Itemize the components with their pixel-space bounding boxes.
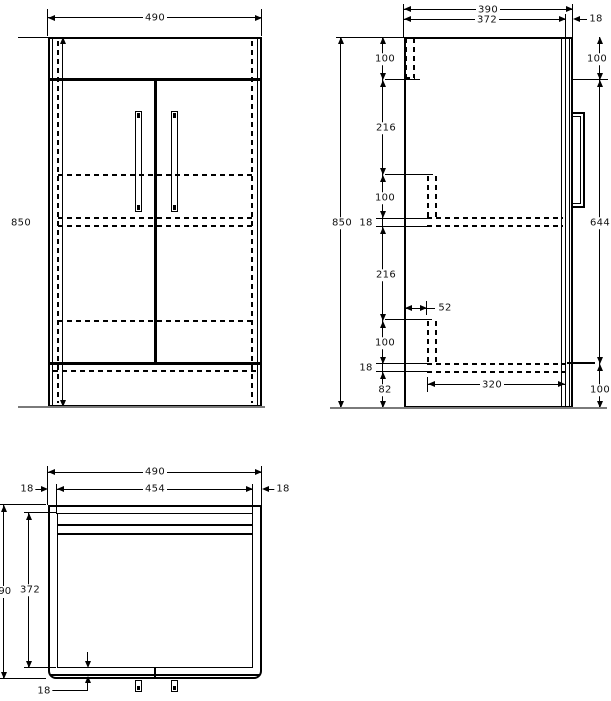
arrowhead xyxy=(255,469,262,475)
side-cabinet-outline xyxy=(404,37,573,408)
dim-front-height: 850 xyxy=(9,217,33,229)
back-rail-line xyxy=(57,524,253,526)
arrowhead xyxy=(85,661,91,668)
arrowhead xyxy=(26,661,32,668)
dim-side-height: 850 xyxy=(330,217,354,229)
arrowhead xyxy=(566,6,573,12)
arrowhead xyxy=(338,37,344,44)
carcass-front-line xyxy=(561,38,562,407)
back-rail-line xyxy=(57,533,253,535)
extension-line xyxy=(376,371,427,372)
dim-seg-bottom: 100 xyxy=(373,337,397,349)
arrowhead xyxy=(380,80,386,87)
plan-door-split xyxy=(154,667,156,679)
dim-line xyxy=(382,37,383,408)
plan-handle-cap xyxy=(137,686,140,690)
arrowhead xyxy=(380,227,386,234)
arrowhead xyxy=(380,37,386,44)
extension-line xyxy=(385,79,420,80)
extension-line xyxy=(385,319,432,320)
dim-door-bottom-offset: 100 xyxy=(588,384,611,396)
extension-line xyxy=(376,218,430,219)
side-panel-line xyxy=(257,38,258,406)
arrowhead xyxy=(380,211,386,218)
dim-seg-lower: 216 xyxy=(374,269,398,281)
dim-plan-side-left: 18 xyxy=(18,483,35,495)
hidden-edge xyxy=(57,41,59,403)
door-front-line xyxy=(569,38,570,407)
handle-end-cap xyxy=(173,205,176,210)
arrowhead xyxy=(597,80,603,87)
extension-line xyxy=(18,37,50,38)
dim-front-rail-depth: 52 xyxy=(436,302,453,314)
dim-plan-door-thickness: 18 xyxy=(35,685,52,697)
hidden-base-panel xyxy=(427,363,566,365)
hidden-shelf xyxy=(58,217,252,219)
extension-line xyxy=(385,174,433,175)
hidden-back-rail xyxy=(405,38,407,78)
extension-line xyxy=(336,37,404,38)
hidden-back-rail xyxy=(413,38,415,78)
arrowhead xyxy=(404,16,411,22)
extension-line xyxy=(376,363,427,364)
left-door-handle xyxy=(135,111,142,212)
arrowhead xyxy=(404,6,411,12)
arrowhead xyxy=(428,381,435,387)
arrowhead xyxy=(85,676,91,683)
dim-door-top-offset: 100 xyxy=(585,53,609,65)
dim-plan-depth-overall: 390 xyxy=(0,586,12,598)
extension-line xyxy=(261,9,262,36)
hidden-shelf xyxy=(427,225,563,227)
dim-side-door-thickness: 18 xyxy=(587,13,604,25)
arrowhead xyxy=(380,372,386,379)
hidden-shelf xyxy=(58,320,252,322)
handle-end-cap xyxy=(173,113,176,118)
dim-side-depth-carcass: 372 xyxy=(475,14,499,26)
extension-line xyxy=(567,362,595,364)
arrowhead xyxy=(26,513,32,520)
dim-seg-upper: 216 xyxy=(374,122,398,134)
door-back-line xyxy=(565,38,566,407)
arrowhead xyxy=(597,37,603,44)
dim-plan-depth-carcass: 372 xyxy=(18,584,42,596)
arrowhead xyxy=(246,486,253,492)
dim-door-height: 644 xyxy=(588,217,611,229)
dim-plan-width-overall: 490 xyxy=(143,466,167,478)
arrowhead xyxy=(262,486,269,492)
extension-line xyxy=(47,9,48,36)
dim-seg-top-rail: 100 xyxy=(373,53,397,65)
door-bottom-line xyxy=(48,362,262,365)
arrowhead xyxy=(48,469,55,475)
arrowhead xyxy=(380,175,386,182)
leader-line xyxy=(52,690,88,691)
extension-line xyxy=(573,79,608,80)
ground-line xyxy=(18,406,265,408)
hidden-base-panel xyxy=(427,371,566,373)
dim-front-width: 490 xyxy=(143,12,167,24)
technical-drawing-vanity-unit: 490 850 xyxy=(0,0,611,701)
hidden-shelf xyxy=(58,174,252,176)
hidden-shelf xyxy=(58,225,252,227)
door-split-line xyxy=(154,80,157,365)
plan-carcass-outline xyxy=(57,513,253,668)
arrowhead xyxy=(597,364,603,371)
hidden-rail xyxy=(435,176,437,218)
arrowhead xyxy=(558,381,565,387)
hidden-rail xyxy=(435,321,437,365)
plan-handle-cap xyxy=(173,686,176,690)
ground-line xyxy=(330,407,607,409)
hidden-plinth-line xyxy=(53,370,258,372)
dim-seg-plinth: 82 xyxy=(376,384,393,396)
arrowhead xyxy=(41,486,48,492)
extension-line xyxy=(427,377,428,392)
dim-plan-side-right: 18 xyxy=(274,483,291,495)
handle-end-cap xyxy=(137,113,140,118)
arrowhead xyxy=(597,357,603,364)
dim-plan-width-carcass: 454 xyxy=(143,483,167,495)
hidden-edge xyxy=(251,41,253,403)
hidden-rail xyxy=(427,321,429,365)
hidden-rail xyxy=(427,176,429,218)
arrowhead xyxy=(255,15,262,21)
dim-base-width: 320 xyxy=(480,379,504,391)
door-handle-profile-inner xyxy=(573,116,581,204)
arrowhead xyxy=(559,16,566,22)
dim-seg-mid: 100 xyxy=(373,192,397,204)
arrowhead xyxy=(57,486,64,492)
extension-line xyxy=(426,301,427,315)
arrowhead xyxy=(48,15,55,21)
arrowhead xyxy=(573,16,580,22)
hidden-shelf xyxy=(427,217,563,219)
dim-seg-shelf: 18 xyxy=(357,217,374,229)
dim-seg-base-panel: 18 xyxy=(357,362,374,374)
arrowhead xyxy=(1,672,7,679)
handle-end-cap xyxy=(137,205,140,210)
extension-line xyxy=(376,226,430,227)
arrowhead xyxy=(380,321,386,328)
arrowhead xyxy=(405,305,412,311)
right-door-handle xyxy=(171,111,178,212)
side-panel-line xyxy=(52,38,53,406)
arrowhead xyxy=(1,505,7,512)
